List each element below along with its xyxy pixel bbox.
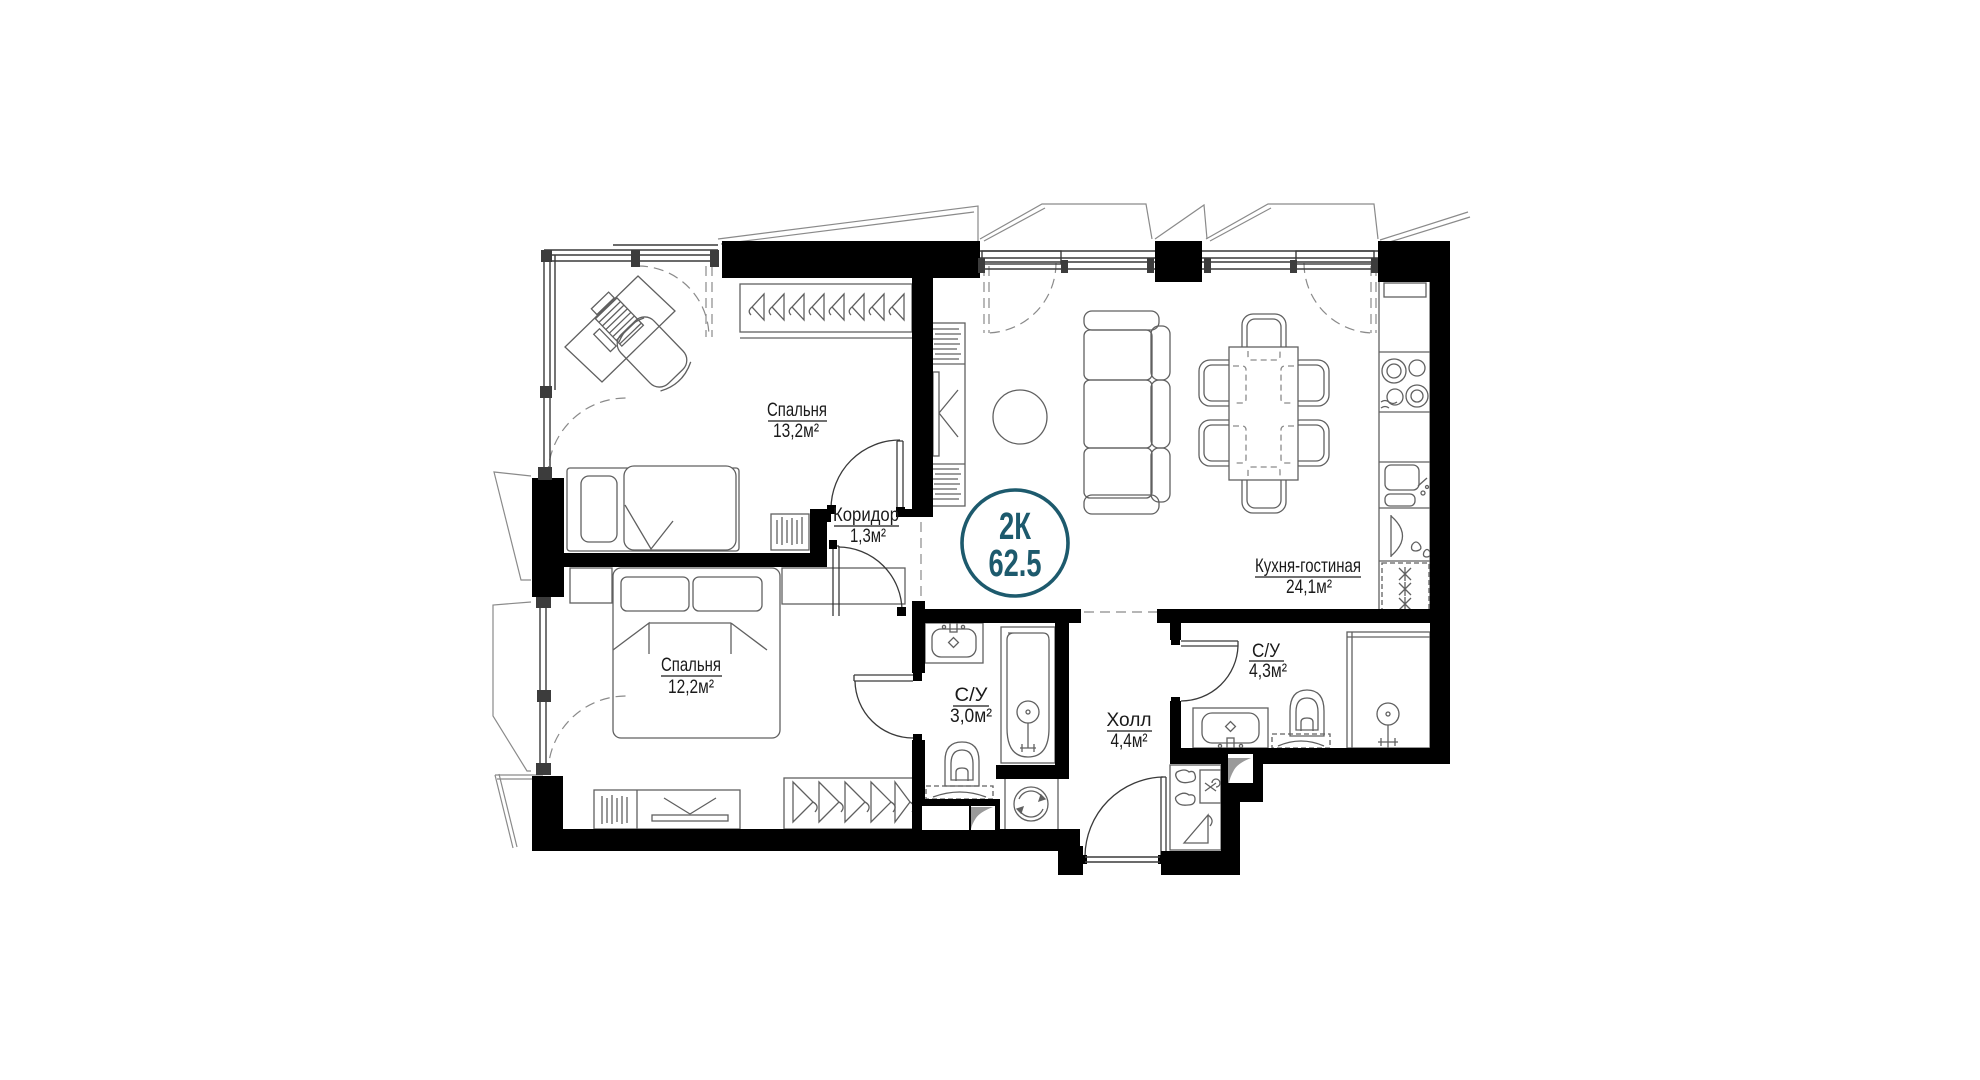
svg-text:Кухня-гостиная: Кухня-гостиная	[1255, 555, 1361, 577]
svg-text:С/У: С/У	[955, 684, 989, 706]
svg-text:С/У: С/У	[1252, 640, 1281, 662]
svg-text:Холл: Холл	[1107, 709, 1152, 731]
svg-text:Спальня: Спальня	[661, 654, 721, 676]
svg-text:62.5: 62.5	[989, 543, 1042, 585]
svg-text:4,4м²: 4,4м²	[1111, 730, 1148, 752]
svg-text:3,0м²: 3,0м²	[950, 705, 992, 727]
svg-text:24,1м²: 24,1м²	[1286, 576, 1332, 598]
svg-text:13,2м²: 13,2м²	[773, 420, 819, 442]
svg-text:2К: 2К	[999, 506, 1032, 548]
svg-text:1,3м²: 1,3м²	[850, 525, 886, 547]
svg-text:Коридор: Коридор	[833, 504, 899, 526]
svg-text:12,2м²: 12,2м²	[668, 676, 714, 698]
svg-text:Спальня: Спальня	[767, 399, 827, 421]
svg-text:4,3м²: 4,3м²	[1249, 660, 1287, 682]
